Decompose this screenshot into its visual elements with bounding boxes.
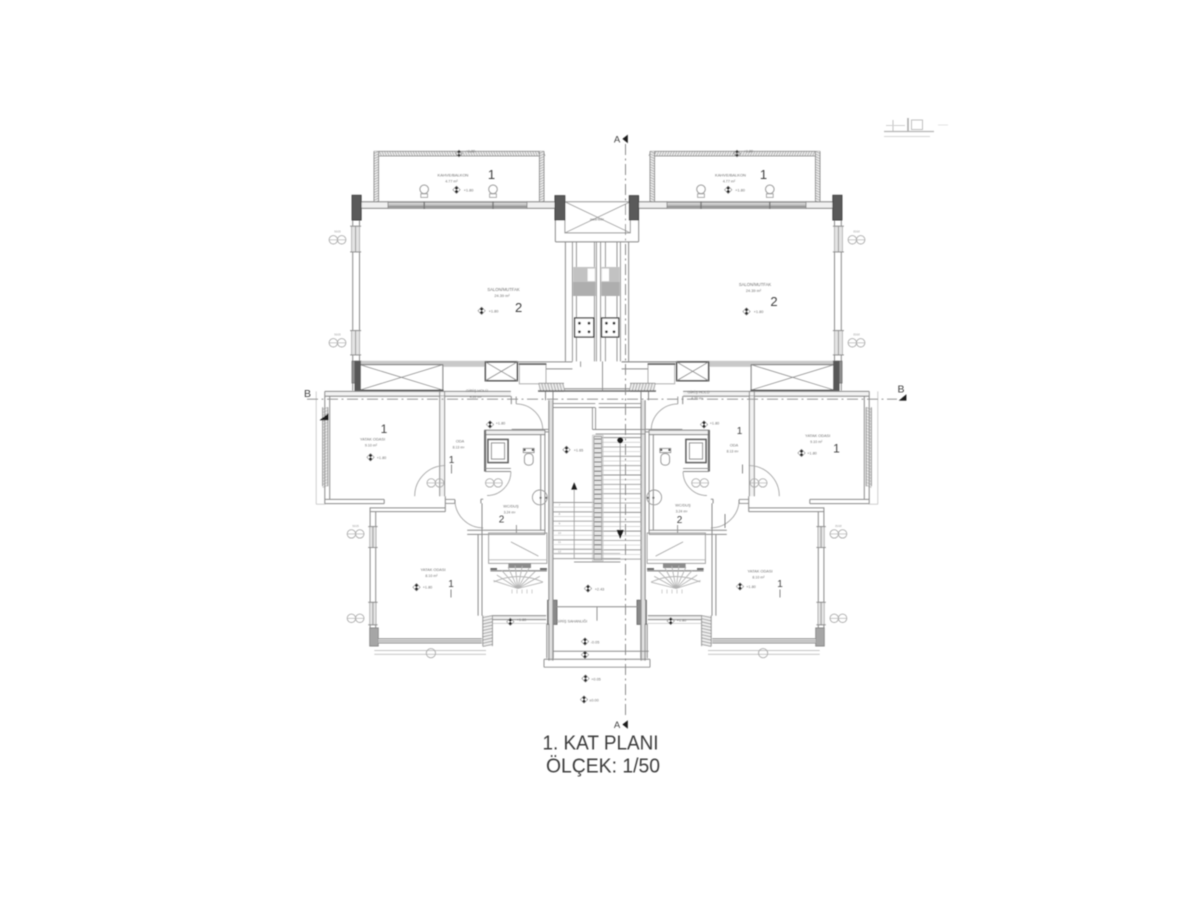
svg-text:-0.05: -0.05 xyxy=(591,640,600,644)
svg-text:1: 1 xyxy=(381,422,388,436)
svg-text:±0.00: ±0.00 xyxy=(589,698,598,702)
svg-text:1: 1 xyxy=(448,579,454,590)
svg-text:4.20 m²: 4.20 m² xyxy=(691,397,704,401)
svg-text:12: 12 xyxy=(558,550,562,554)
svg-text:+1.80: +1.80 xyxy=(677,619,687,623)
svg-text:SALON/MUTFAK: SALON/MUTFAK xyxy=(739,282,772,287)
svg-text:24.39 m²: 24.39 m² xyxy=(746,288,762,293)
svg-text:2: 2 xyxy=(770,294,777,309)
svg-text:4.77 m²: 4.77 m² xyxy=(723,180,736,184)
svg-text:+0.05: +0.05 xyxy=(591,677,601,681)
svg-text:1: 1 xyxy=(760,167,767,182)
svg-text:asansör: asansör xyxy=(590,217,605,222)
svg-text:YATAK ODASI: YATAK ODASI xyxy=(360,437,385,442)
svg-text:+1.80: +1.80 xyxy=(517,618,527,622)
svg-text:ODA: ODA xyxy=(730,444,739,448)
svg-text:8.13 m²: 8.13 m² xyxy=(727,450,740,454)
svg-text:+1.80: +1.80 xyxy=(464,188,475,193)
svg-text:SALON/MUTFAK: SALON/MUTFAK xyxy=(487,287,520,292)
svg-text:+1.80: +1.80 xyxy=(423,586,433,590)
svg-text:1: 1 xyxy=(833,442,840,456)
svg-text:1: 1 xyxy=(777,579,783,590)
svg-text:GİRİŞ HOLÜ: GİRİŞ HOLÜ xyxy=(688,390,710,395)
svg-text:+1.80: +1.80 xyxy=(735,188,746,193)
svg-text:4.20 m²: 4.20 m² xyxy=(470,395,483,399)
svg-text:+1.80: +1.80 xyxy=(496,422,506,426)
svg-text:11: 11 xyxy=(558,540,561,544)
svg-text:+1.65: +1.65 xyxy=(574,449,584,453)
svg-text:GİRİŞ SAHANLIĞI: GİRİŞ SAHANLIĞI xyxy=(556,619,587,624)
svg-text:YATAK ODASI: YATAK ODASI xyxy=(805,433,830,438)
svg-text:+2.43: +2.43 xyxy=(595,588,605,592)
svg-text:3.24 m²: 3.24 m² xyxy=(504,511,517,515)
svg-text:1. KAT PLANI: 1. KAT PLANI xyxy=(543,732,659,755)
svg-text:+1.80: +1.80 xyxy=(754,309,765,314)
svg-text:10: 10 xyxy=(558,531,562,535)
svg-text:2: 2 xyxy=(515,300,522,315)
svg-text:A: A xyxy=(614,135,621,146)
svg-text:YATAK ODASI: YATAK ODASI xyxy=(420,567,445,572)
svg-text:9.10 m²: 9.10 m² xyxy=(365,444,378,448)
svg-text:B: B xyxy=(897,384,904,396)
svg-text:+1.80: +1.80 xyxy=(466,150,475,154)
svg-text:ODA: ODA xyxy=(456,440,465,444)
svg-text:+1.80: +1.80 xyxy=(489,308,500,313)
svg-text:+1.80: +1.80 xyxy=(744,150,753,154)
svg-text:4.77 m²: 4.77 m² xyxy=(445,180,458,184)
svg-text:YATAK ODASI: YATAK ODASI xyxy=(747,569,772,574)
svg-text:GİRİŞ HOLÜ: GİRİŞ HOLÜ xyxy=(466,388,488,393)
svg-text:8.10 m²: 8.10 m² xyxy=(425,574,438,578)
svg-text:1: 1 xyxy=(737,426,743,437)
svg-text:3.24 m²: 3.24 m² xyxy=(676,510,689,514)
svg-text:2: 2 xyxy=(499,515,505,526)
svg-text:KAHVE/BALKON: KAHVE/BALKON xyxy=(438,173,469,178)
svg-text:A: A xyxy=(614,720,621,731)
svg-text:+1.80: +1.80 xyxy=(710,422,720,426)
svg-text:1: 1 xyxy=(488,167,495,182)
svg-text:8.13 m²: 8.13 m² xyxy=(453,446,466,450)
svg-text:WC/DUŞ: WC/DUŞ xyxy=(675,504,691,508)
svg-text:2: 2 xyxy=(677,515,683,526)
svg-text:9.10 m²: 9.10 m² xyxy=(810,440,823,444)
svg-text:+1.80: +1.80 xyxy=(377,456,387,460)
svg-text:24.39 m²: 24.39 m² xyxy=(494,293,510,298)
svg-text:ÖLÇEK: 1/50: ÖLÇEK: 1/50 xyxy=(546,755,660,778)
svg-text:+1.80: +1.80 xyxy=(807,452,817,456)
svg-text:WC/DUŞ: WC/DUŞ xyxy=(503,505,519,509)
svg-text:B: B xyxy=(304,388,311,400)
svg-text:KAHVE/BALKON: KAHVE/BALKON xyxy=(715,173,746,178)
svg-text:+1.80: +1.80 xyxy=(746,585,756,589)
svg-text:1: 1 xyxy=(449,455,455,466)
svg-text:8.10 m²: 8.10 m² xyxy=(752,576,765,580)
